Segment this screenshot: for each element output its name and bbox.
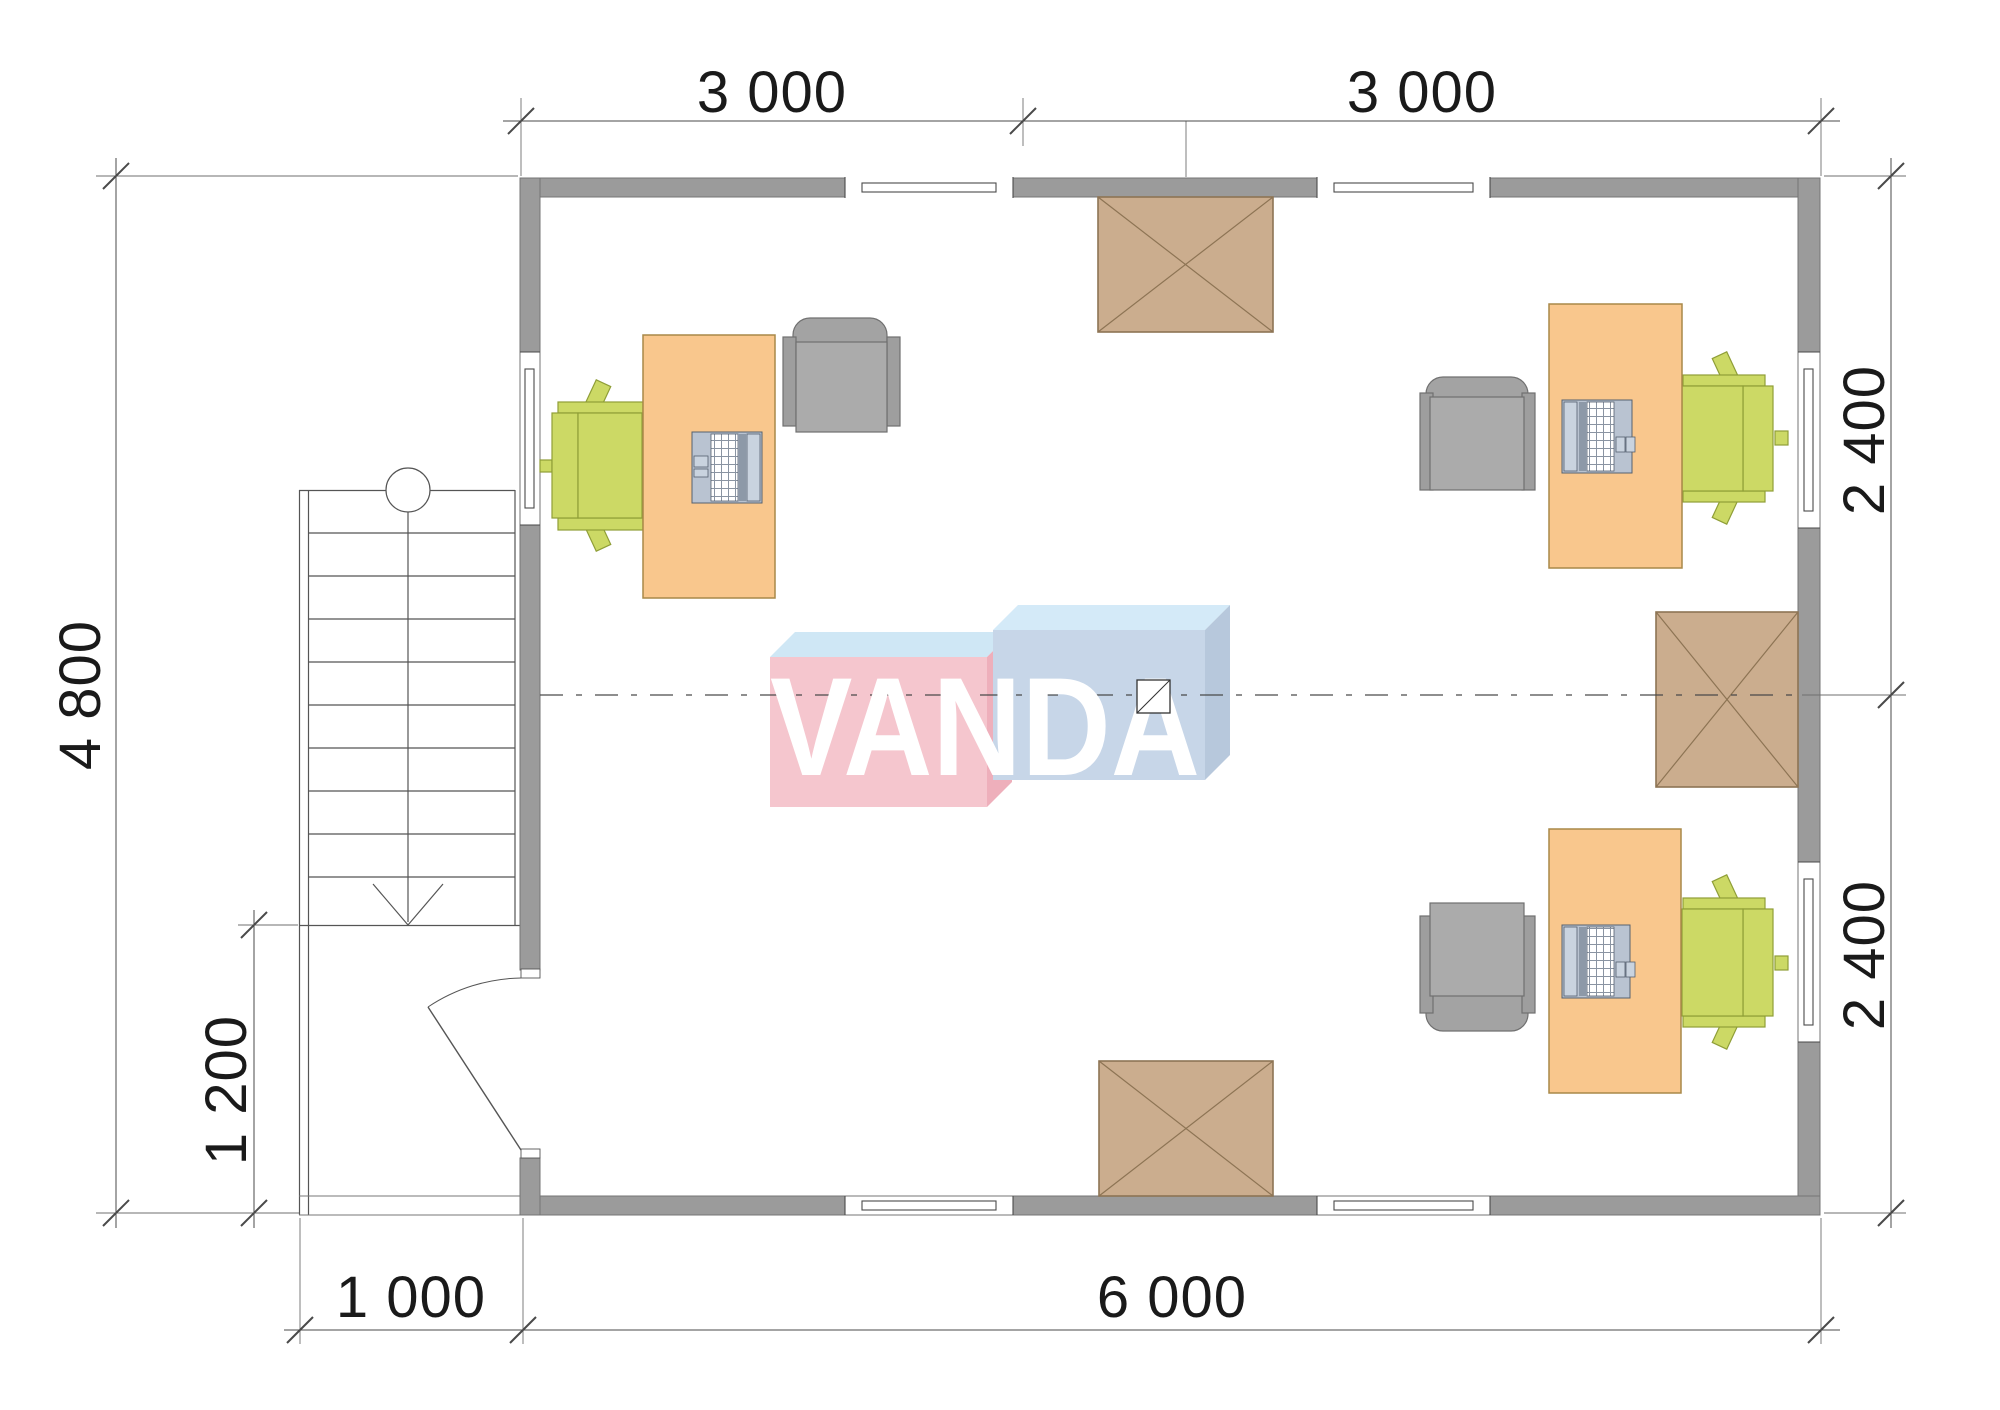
staircase: [299, 468, 521, 1215]
window: [1317, 177, 1490, 198]
stair-treads: [308, 533, 515, 877]
dim-label-top-right: 3 000: [1347, 60, 1497, 125]
entry-door: [428, 969, 540, 1158]
door-swing-arc: [428, 978, 521, 1007]
logo-box-blue-top: [993, 605, 1230, 630]
porch: [299, 1196, 521, 1215]
wall-left-door-stub: [520, 1158, 540, 1215]
dim-label-left-height: 4 800: [48, 620, 113, 770]
office-chair: [1682, 875, 1788, 1049]
floor-plan-canvas: VANDA: [0, 0, 2000, 1410]
dim-label-porch-width: 1 000: [336, 1265, 486, 1330]
workstation-3: [1420, 829, 1788, 1093]
dim-label-right-lower: 2 400: [1832, 880, 1897, 1030]
window: [845, 177, 1013, 198]
dim-label-top-left: 3 000: [697, 60, 847, 125]
skylight-box-top: [1098, 197, 1273, 332]
dim-label-porch-height: 1 200: [194, 1015, 259, 1165]
window: [1317, 1196, 1490, 1215]
dim-label-right-upper: 2 400: [1832, 365, 1897, 515]
laptop: [692, 432, 762, 503]
wall-right: [1798, 178, 1820, 1215]
armchair: [1420, 903, 1535, 1031]
wall-top: [520, 178, 1820, 197]
laptop: [1562, 925, 1635, 998]
logo-wordmark: VANDA: [770, 648, 1200, 805]
skylight-box-bottom: [1099, 1061, 1273, 1196]
office-chair: [1682, 352, 1788, 524]
window: [520, 352, 540, 525]
dim-label-bottom-width: 6 000: [1097, 1265, 1247, 1330]
stair-start-marker: [386, 468, 430, 512]
armchair: [1420, 377, 1535, 490]
wall-left-upper: [520, 178, 540, 970]
section-marker: [1137, 680, 1170, 713]
workstation-2: [1420, 304, 1788, 568]
workstation-1: [540, 318, 900, 598]
laptop: [1562, 400, 1635, 473]
floor-plan: VANDA: [0, 0, 2000, 1410]
window: [1798, 862, 1820, 1042]
office-chair: [540, 380, 643, 551]
logo-box-blue-side: [1205, 605, 1230, 780]
wall-bottom: [521, 1196, 1820, 1215]
door-leaf: [428, 1007, 521, 1150]
skylight-box-right: [1656, 612, 1798, 787]
armchair: [783, 318, 900, 432]
window: [845, 1196, 1013, 1215]
window: [1798, 352, 1820, 528]
